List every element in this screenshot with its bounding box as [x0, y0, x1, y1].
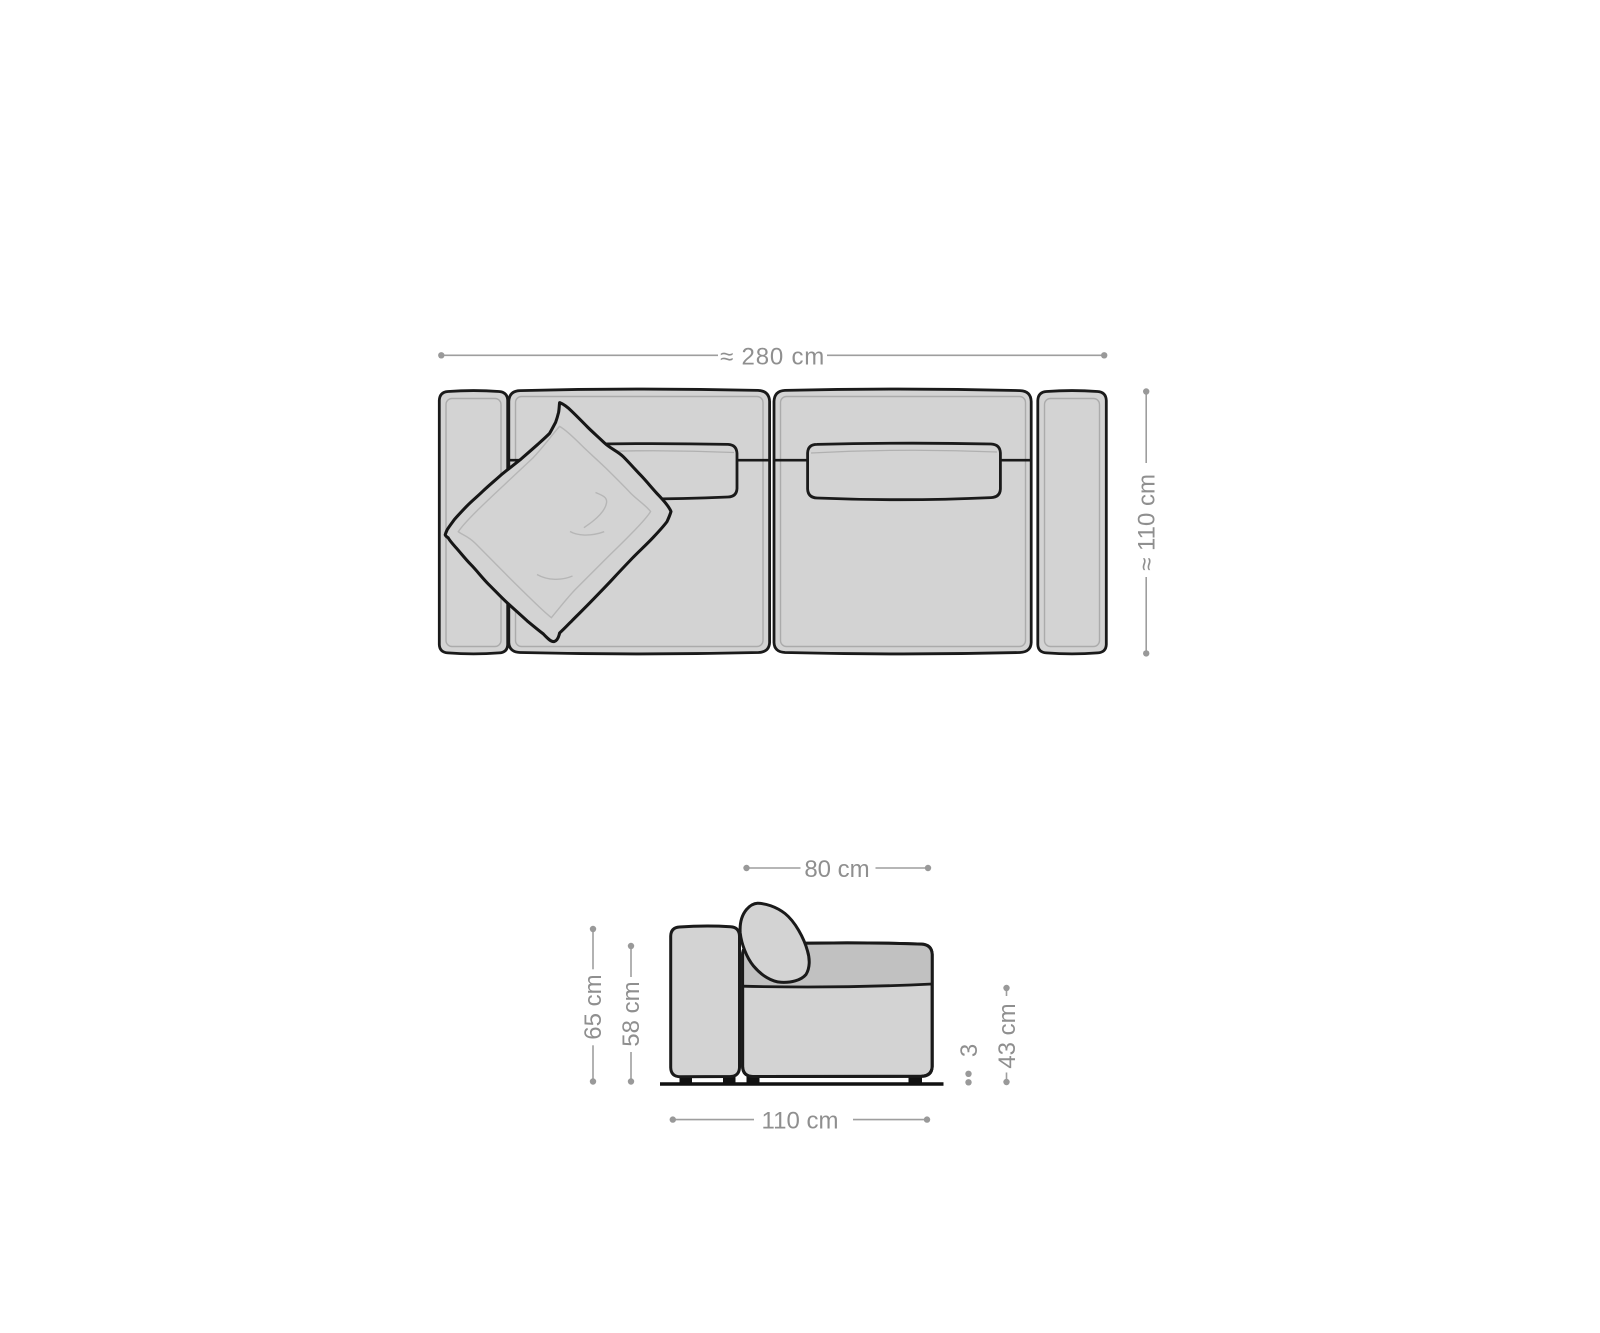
svg-text:3: 3 [956, 1044, 983, 1057]
svg-text:≈ 110 cm: ≈ 110 cm [1134, 474, 1161, 571]
svg-text:43 cm: 43 cm [994, 1003, 1021, 1068]
svg-text:58 cm: 58 cm [618, 981, 645, 1046]
svg-text:110 cm: 110 cm [762, 1108, 839, 1135]
svg-text:80 cm: 80 cm [804, 856, 869, 883]
svg-text:65 cm: 65 cm [580, 974, 607, 1039]
svg-text:≈ 280 cm: ≈ 280 cm [720, 343, 825, 370]
